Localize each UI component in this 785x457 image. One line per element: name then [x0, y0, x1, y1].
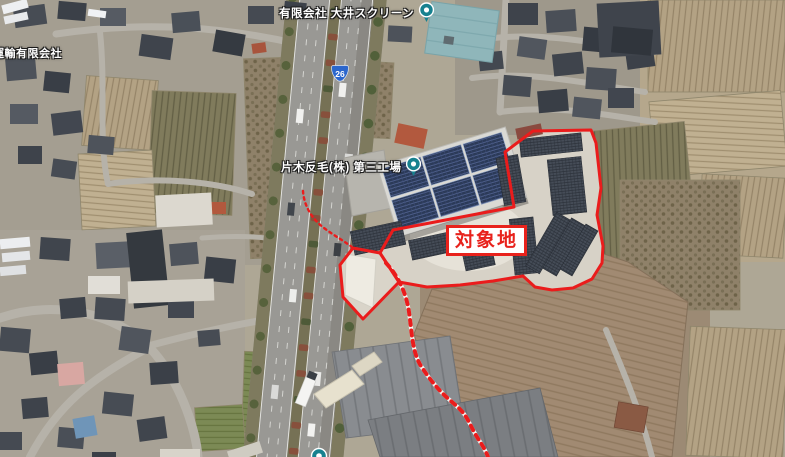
median-bush [321, 111, 331, 118]
house-roof [118, 326, 151, 354]
house-roof [388, 25, 413, 42]
house-roof [102, 391, 134, 416]
house-roof [517, 36, 548, 60]
house-roof [545, 9, 576, 33]
house-roof [139, 34, 174, 60]
median-bush [328, 33, 338, 40]
building-roof [210, 202, 226, 214]
house-roof [10, 104, 38, 124]
house-roof [608, 88, 634, 108]
house-roof [92, 452, 116, 457]
place-label-text: 有限会社 大井スクリーン [279, 5, 414, 21]
median-bush [308, 240, 318, 247]
place-pin-icon[interactable] [404, 155, 423, 178]
place-label-text: 片木反毛(株) 第三工場 [281, 159, 401, 175]
house-roof [87, 135, 114, 155]
place-pin-icon[interactable] [417, 1, 436, 24]
house-roof [171, 11, 201, 33]
field-plot [686, 326, 785, 457]
house-roof [149, 361, 178, 385]
median-bush [289, 448, 299, 455]
house-roof [0, 327, 31, 354]
route-number: 26 [335, 69, 345, 79]
building-roof [251, 42, 266, 54]
house-roof [0, 432, 22, 450]
aerial-imagery: 26 [0, 0, 785, 457]
building-roof [72, 415, 97, 439]
median-bush [291, 422, 301, 429]
median-bush [303, 292, 313, 299]
house-roof [572, 97, 602, 120]
median-bush [313, 189, 323, 196]
building-roof [160, 449, 200, 457]
house-roof [18, 146, 42, 164]
house-roof [197, 329, 220, 347]
barn [614, 402, 648, 433]
house-roof [51, 110, 83, 135]
field-plot [78, 150, 156, 230]
median-bush [301, 318, 311, 325]
street [202, 237, 266, 239]
field-plot [648, 0, 785, 92]
median-bush [298, 344, 308, 351]
house-roof [552, 51, 584, 76]
building-roof [57, 362, 85, 386]
bale-stack [547, 156, 587, 215]
target-site-label: 対象地 [455, 230, 518, 251]
place-label-text: 運輸有限会社 [0, 45, 62, 61]
house-roof [508, 3, 538, 25]
building-roof [155, 193, 213, 228]
field-plot [195, 404, 246, 451]
house-roof [611, 26, 653, 55]
median-bush [323, 85, 333, 92]
house-roof [29, 351, 59, 376]
house-roof [21, 397, 49, 419]
house-roof [94, 297, 125, 321]
house-roof [137, 416, 168, 442]
house-roof [169, 242, 199, 266]
median-bush [306, 266, 316, 273]
building-roof [128, 279, 215, 304]
place-label-unyu[interactable]: 運輸有限会社 [0, 45, 62, 61]
satellite-map[interactable]: 26 有限会社 大井スクリーン 片木反毛(株) 第三工場 運輸有限会社 対象地 [0, 0, 785, 457]
house-roof [585, 67, 616, 91]
house-roof [39, 237, 70, 261]
place-label-katagi-daisan-kojo[interactable]: 片木反毛(株) 第三工場 [281, 155, 423, 178]
house-roof [43, 71, 71, 94]
house-roof [248, 6, 274, 24]
target-site-annotation: 対象地 [446, 225, 527, 256]
house-roof [59, 297, 87, 319]
house-roof [51, 158, 77, 179]
house-roof [502, 75, 532, 97]
median-bush [318, 137, 328, 144]
place-label-oi-screen[interactable]: 有限会社 大井スクリーン [279, 1, 436, 24]
median-bush [296, 370, 306, 377]
place-pin-icon[interactable] [312, 449, 327, 457]
building-roof [88, 276, 120, 294]
house-roof [57, 1, 86, 21]
house-roof [537, 89, 569, 114]
